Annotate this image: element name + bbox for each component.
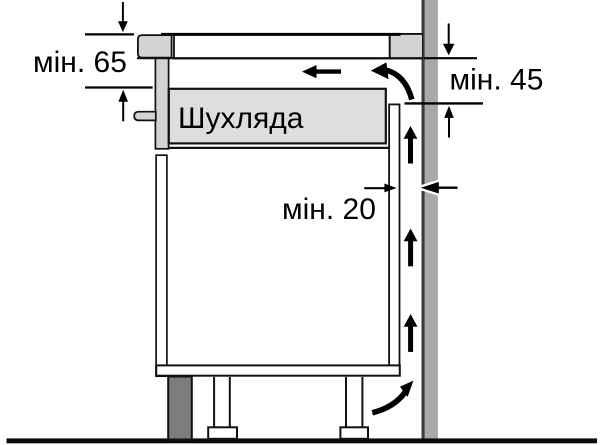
svg-text:мін. 45: мін. 45 — [450, 64, 544, 97]
svg-text:мін. 20: мін. 20 — [282, 193, 376, 226]
svg-text:Шухляда: Шухляда — [178, 102, 304, 135]
svg-text:мін. 65: мін. 65 — [33, 46, 127, 79]
